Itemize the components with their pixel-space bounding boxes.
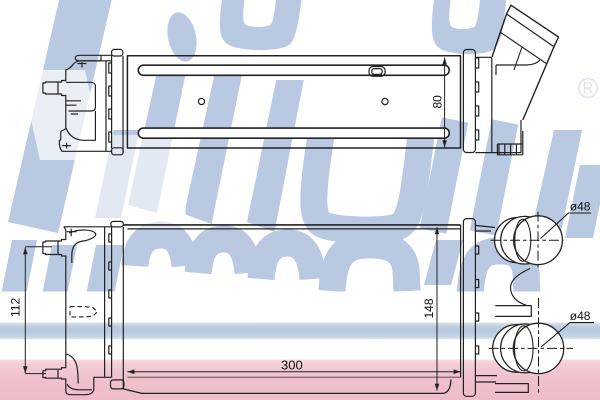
- svg-text:ø48: ø48: [570, 199, 591, 213]
- svg-text:ø48: ø48: [570, 309, 591, 323]
- svg-text:300: 300: [281, 357, 303, 372]
- svg-text:112: 112: [9, 298, 23, 317]
- svg-text:80: 80: [430, 95, 444, 109]
- svg-text:148: 148: [422, 298, 436, 318]
